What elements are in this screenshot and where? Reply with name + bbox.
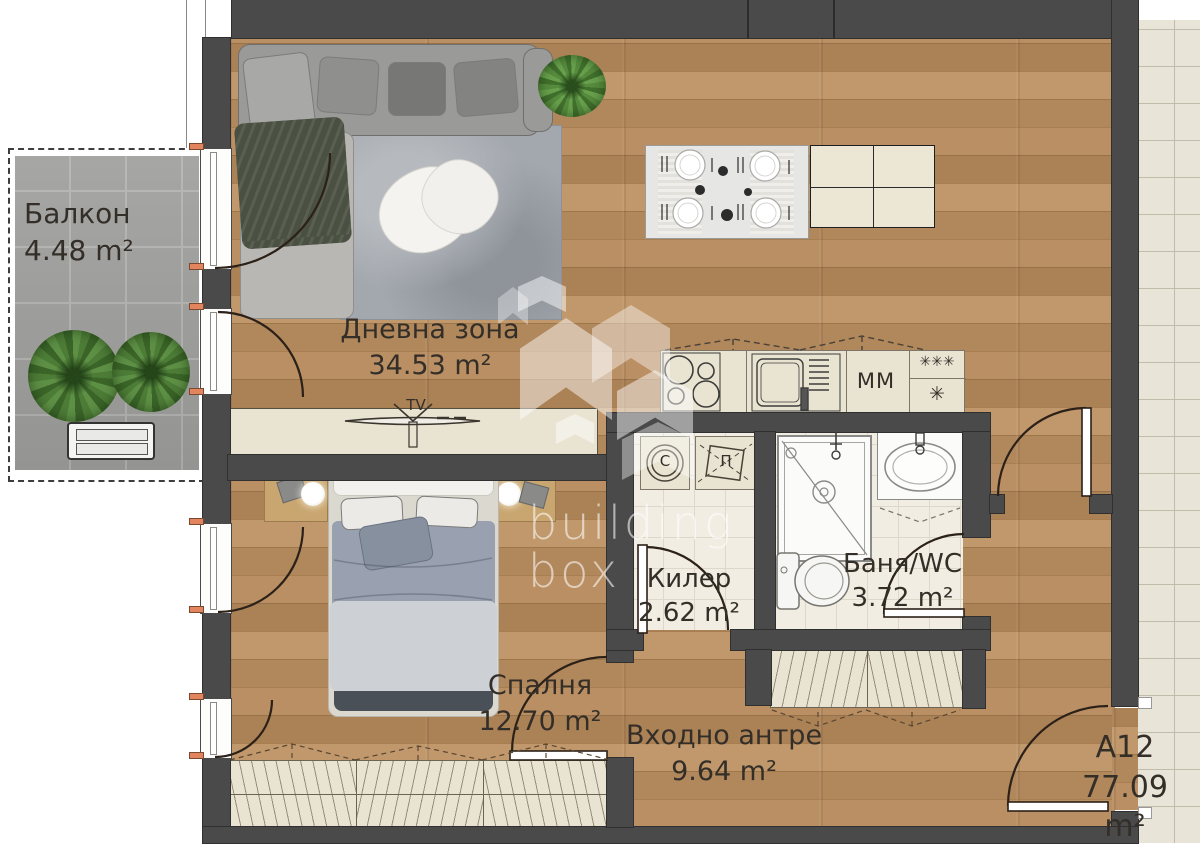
sofa-pillow (316, 56, 380, 116)
insulation-marker (189, 752, 204, 759)
balcony-area: 4.48 m² (24, 233, 184, 270)
unit-label: A12 77.09 m² (1058, 728, 1192, 847)
bath-area: 3.72 m² (835, 581, 970, 615)
dishwasher-label: ММ (850, 368, 902, 396)
sofa-pillow (388, 62, 446, 116)
bedroom-label: Спалня 12.70 m² (440, 668, 640, 739)
wall-hall-stub (1090, 495, 1112, 513)
insulation-marker (189, 143, 204, 150)
watermark-text-line2: box (528, 544, 620, 598)
bath-label: Баня/WC 3.72 m² (835, 547, 970, 616)
storage-name: Килер (630, 562, 748, 596)
wall-bath-bottom (731, 630, 990, 650)
living-name: Дневна зона (320, 312, 540, 348)
wardrobe-side-panel (963, 650, 985, 708)
wall-left (203, 612, 230, 700)
door-sill (1138, 697, 1152, 709)
sideboard (810, 145, 935, 228)
window-unit (200, 308, 232, 395)
storage-area: 2.62 m² (630, 596, 748, 630)
wall-left (203, 38, 230, 150)
living-area: 34.53 m² (320, 348, 540, 384)
living-label: Дневна зона 34.53 m² (320, 312, 540, 383)
hall-wardrobe (770, 645, 963, 708)
balcony-name: Балкон (24, 196, 184, 233)
lamp-icon (301, 482, 325, 506)
bath-sink-counter (877, 432, 963, 500)
wall-right (1112, 0, 1138, 706)
bath-name: Баня/WC (835, 547, 970, 581)
hall-area: 9.64 m² (618, 754, 830, 790)
wall-bath-right (963, 432, 990, 537)
freezer-stars-label: ✳✳✳ (908, 353, 966, 371)
bedroom-window-unit (200, 698, 232, 759)
insulation-marker (189, 606, 204, 613)
hall-name: Входно антре (618, 718, 830, 754)
living-plant-icon (538, 55, 606, 117)
freezer-star-label: ✳ (908, 382, 966, 407)
wall-top (232, 0, 1138, 38)
insulation-marker (189, 693, 204, 700)
insulation-marker (189, 388, 204, 395)
corridor-top-gap (1138, 0, 1200, 20)
insulation-marker (189, 518, 204, 525)
wardrobe-side-panel (746, 650, 771, 705)
storage-label: Килер 2.62 m² (630, 562, 748, 631)
balcony-plant-icon (28, 330, 120, 422)
balcony-door-unit (200, 148, 232, 270)
bedroom-name: Спалня (440, 668, 640, 704)
tv-label: TV (398, 396, 434, 416)
wall-bottom (203, 827, 1138, 843)
balcony-label: Балкон 4.48 m² (24, 196, 184, 270)
watermark-text-line1: building (528, 496, 735, 550)
wall-seam (833, 0, 835, 38)
wall-storage-bottom (607, 630, 643, 650)
wall-living-bedroom (228, 455, 618, 480)
bedroom-wardrobe (228, 760, 610, 827)
unit-area: 77.09 m² (1058, 768, 1192, 847)
dryer-label: С (655, 452, 675, 472)
wall-left (203, 393, 230, 525)
ac-unit-icon (67, 422, 155, 460)
lamp-icon (497, 482, 521, 506)
wall-storage-bath (755, 432, 775, 630)
insulation-marker (189, 263, 204, 270)
shower-icon (777, 435, 872, 562)
bedroom-window-unit (200, 523, 232, 614)
floor-plan: Балкон 4.48 m² TV ММ ✳✳✳ ✳ (0, 0, 1200, 850)
common-corridor-floor (1138, 0, 1200, 843)
washer-label: П (716, 452, 736, 472)
balcony-plant-icon (112, 332, 190, 412)
nightstand (264, 475, 328, 522)
wall-left (203, 268, 230, 310)
hall-label: Входно антре 9.64 m² (618, 718, 830, 789)
wall-hall-stub (990, 495, 1004, 513)
insulation-marker (189, 303, 204, 310)
throw-blanket (234, 116, 353, 249)
dining-table (645, 145, 809, 239)
bedroom-area: 12.70 m² (440, 704, 640, 740)
sofa-pillow (453, 57, 520, 117)
wall-seam (747, 0, 749, 38)
unit-id: A12 (1058, 728, 1192, 768)
